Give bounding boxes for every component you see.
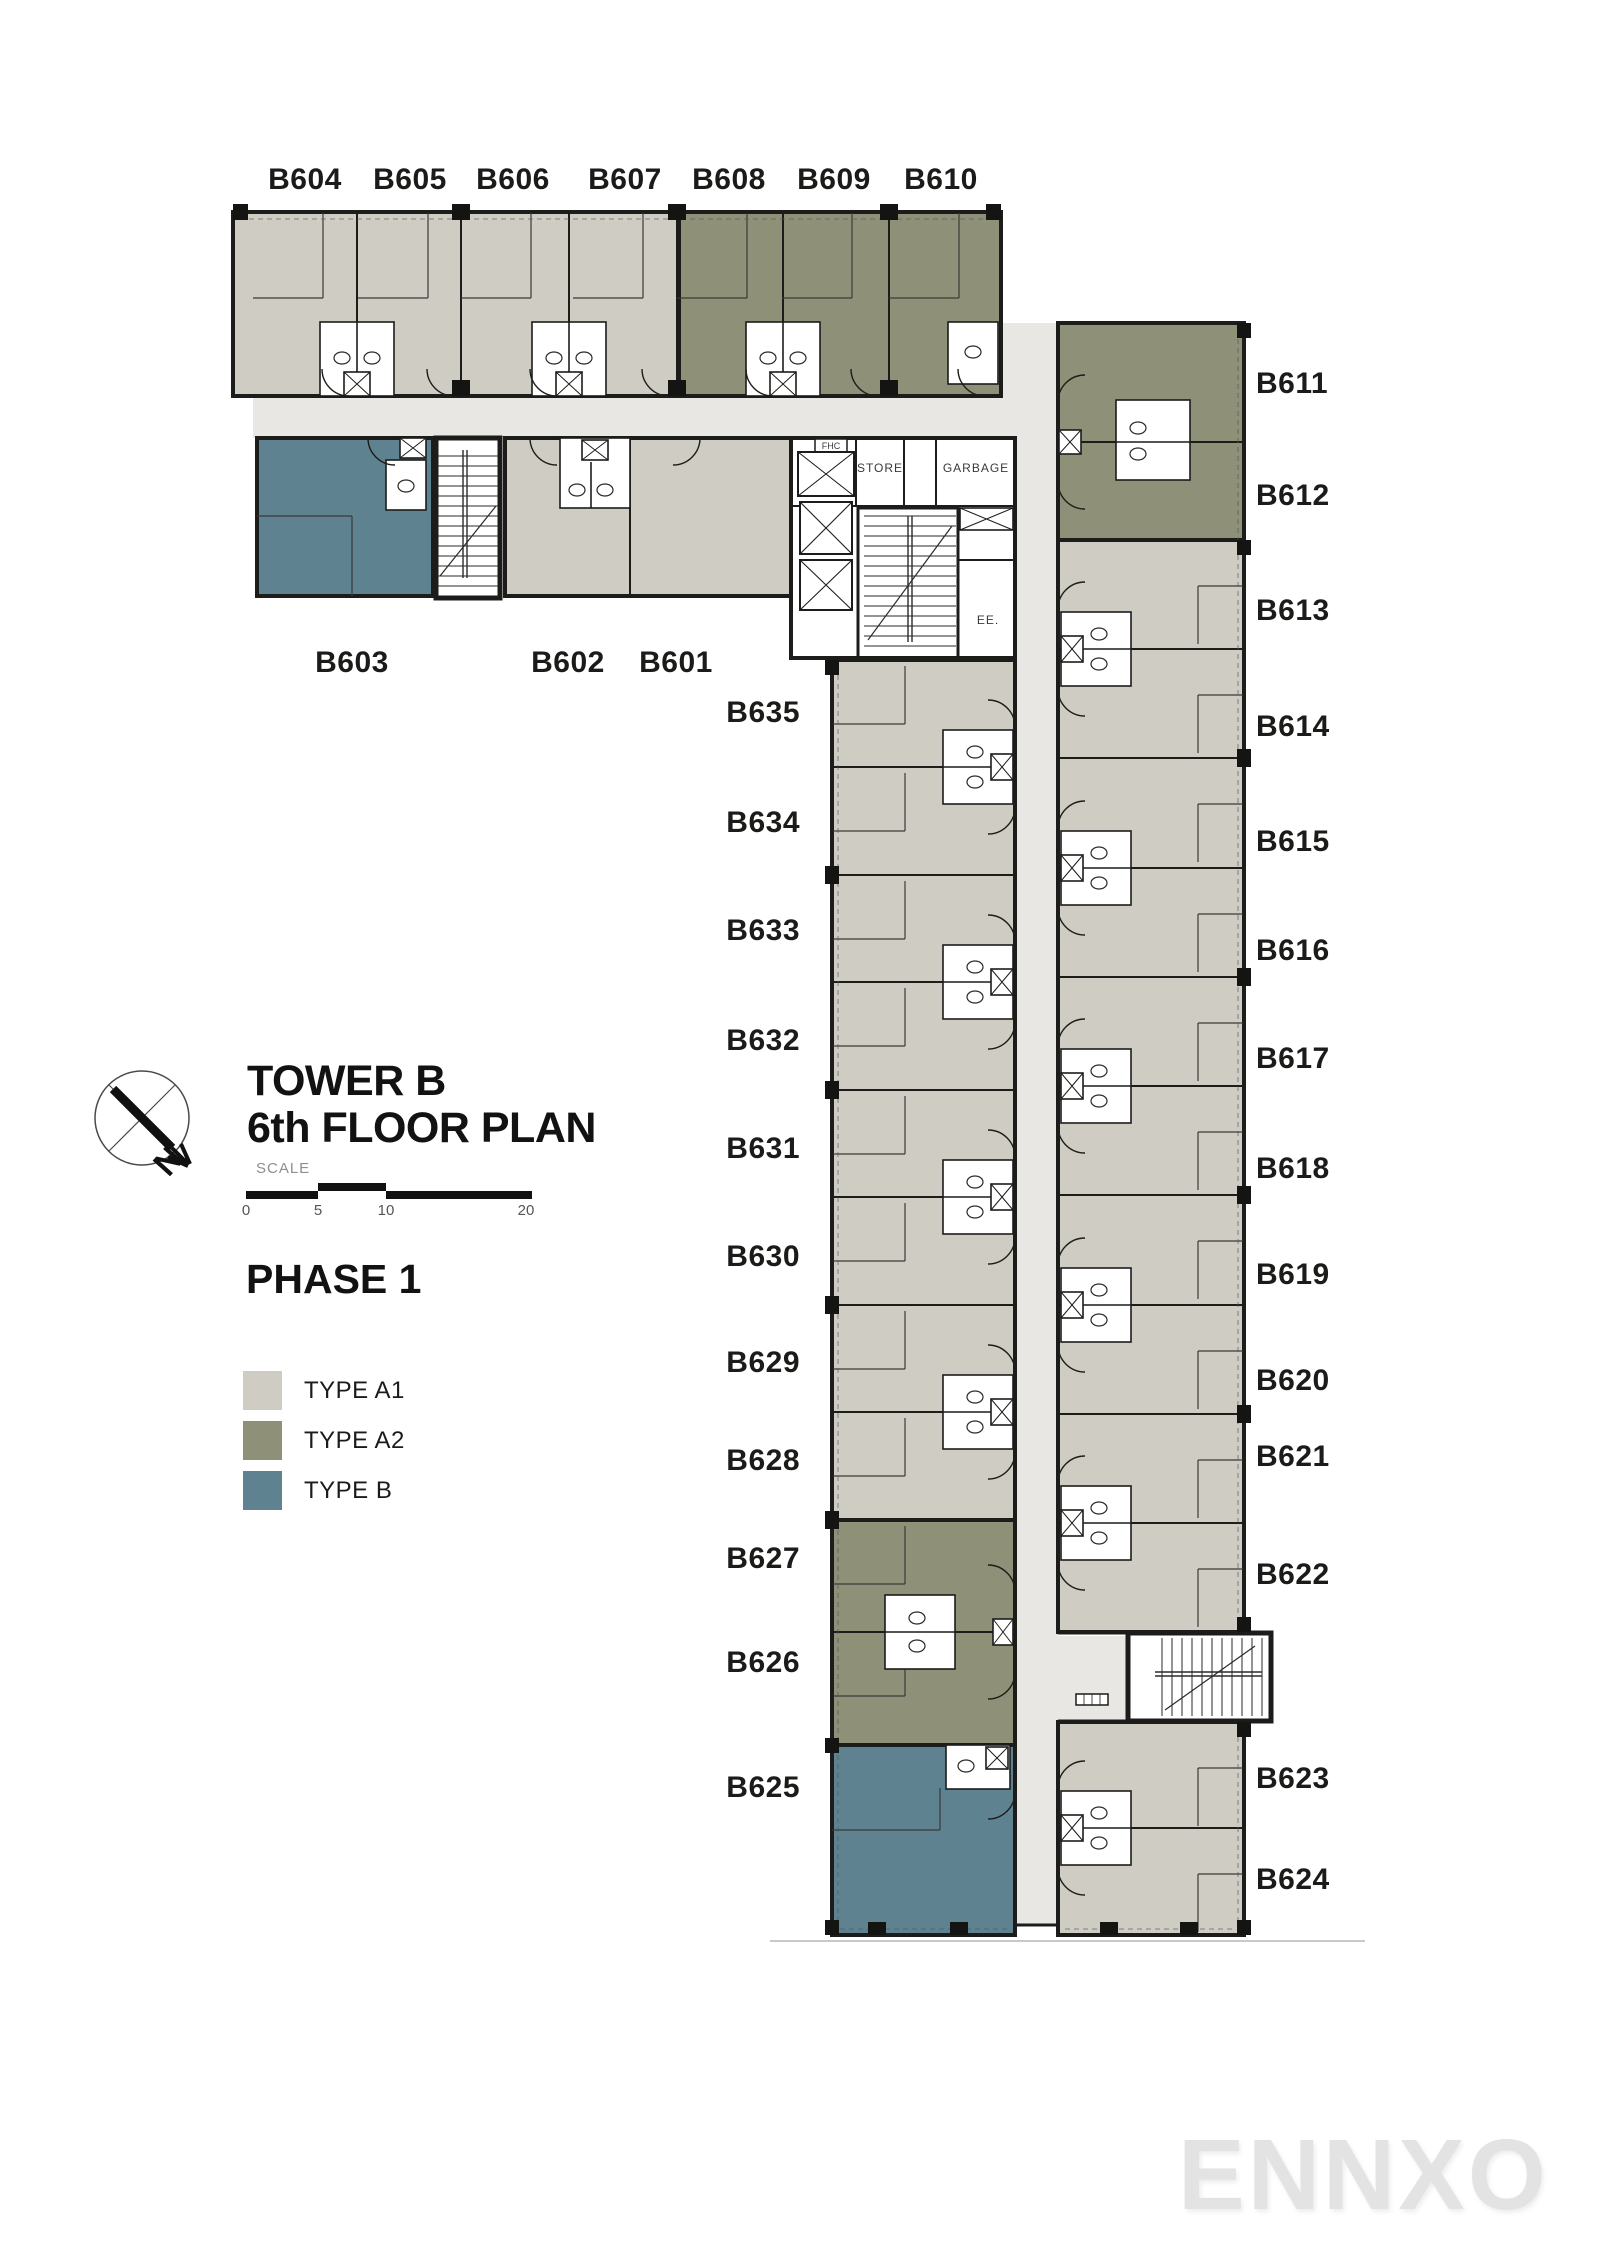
column-mark (825, 1081, 839, 1099)
unit-label-B623: B623 (1256, 1762, 1330, 1795)
unit-label-B601: B601 (639, 646, 713, 679)
type-a2-label: TYPE A2 (304, 1427, 405, 1455)
type-a1-label: TYPE A1 (304, 1377, 405, 1405)
unit-label-B627: B627 (726, 1542, 800, 1575)
unit-label-B628: B628 (726, 1444, 800, 1477)
unit-label-B622: B622 (1256, 1558, 1330, 1591)
block-stair-east (1128, 1633, 1271, 1721)
toilet-fixture (967, 991, 983, 1003)
column-mark (1237, 540, 1251, 555)
north-arrow: N (80, 1056, 230, 1216)
toilet-fixture (967, 961, 983, 973)
unit-label-B632: B632 (726, 1024, 800, 1057)
legend: TYPE A1 TYPE A2 TYPE B (243, 1371, 405, 1521)
column-mark (1180, 1922, 1198, 1935)
unit-label-B617: B617 (1256, 1042, 1330, 1075)
block-top-row-a1 (233, 212, 679, 396)
toilet-fixture (597, 484, 613, 496)
toilet-fixture (965, 346, 981, 358)
floor-plan-page: B604B605B606B607B608B609B610B603B602B601… (0, 0, 1600, 2265)
legend-item-type-a2: TYPE A2 (243, 1421, 405, 1460)
column-mark (1237, 1405, 1251, 1423)
scale-bar-segment (318, 1183, 386, 1191)
column-mark (1237, 1186, 1251, 1204)
unit-label-B607: B607 (588, 163, 662, 196)
unit-label-B608: B608 (692, 163, 766, 196)
toilet-fixture (334, 352, 350, 364)
type-b-label: TYPE B (304, 1477, 392, 1505)
elevator-shafts (798, 452, 854, 610)
column-mark (1237, 1920, 1251, 1935)
toilet-fixture (760, 352, 776, 364)
unit-label-B635: B635 (726, 696, 800, 729)
column-mark (233, 204, 248, 220)
column-mark (1237, 968, 1251, 986)
unit-label-B602: B602 (531, 646, 605, 679)
floor-plan-drawing: B604B605B606B607B608B609B610B603B602B601… (0, 0, 1600, 2265)
toilet-fixture (546, 352, 562, 364)
phase-label: PHASE 1 (246, 1256, 421, 1303)
scale-tick-20: 20 (513, 1202, 539, 1219)
scale-tick-0: 0 (233, 1202, 259, 1219)
legend-item-type-a1: TYPE A1 (243, 1371, 405, 1410)
column-mark (868, 1922, 886, 1935)
scale-bar-segment (386, 1191, 532, 1199)
toilet-fixture (1091, 1314, 1107, 1326)
toilet-fixture (1091, 658, 1107, 670)
column-mark (825, 1920, 839, 1935)
toilet-fixture (909, 1640, 925, 1652)
toilet-fixture (967, 1421, 983, 1433)
column-mark (668, 204, 686, 220)
toilet-fixture (398, 480, 414, 492)
unit-label-B604: B604 (268, 163, 342, 196)
plan-title-line1: TOWER B (247, 1058, 596, 1105)
store-room-label: STORE (857, 461, 903, 475)
toilet-fixture (1091, 1532, 1107, 1544)
column-mark (452, 204, 470, 220)
unit-label-B605: B605 (373, 163, 447, 196)
column-mark (825, 1738, 839, 1753)
column-mark (452, 380, 470, 396)
toilet-fixture (909, 1612, 925, 1624)
unit-label-B629: B629 (726, 1346, 800, 1379)
column-mark (1237, 323, 1251, 338)
toilet-fixture (1091, 1807, 1107, 1819)
column-mark (825, 660, 839, 675)
column-mark (825, 1296, 839, 1314)
toilet-fixture (569, 484, 585, 496)
column-mark (1100, 1922, 1118, 1935)
toilet-fixture (967, 776, 983, 788)
unit-label-B634: B634 (726, 806, 800, 839)
legend-item-type-b: TYPE B (243, 1471, 405, 1510)
column-mark (880, 380, 898, 396)
toilet-fixture (967, 746, 983, 758)
unit-label-B606: B606 (476, 163, 550, 196)
toilet-fixture (1130, 448, 1146, 460)
unit-label-B613: B613 (1256, 594, 1330, 627)
unit-label-B621: B621 (1256, 1440, 1330, 1473)
toilet-fixture (1091, 1837, 1107, 1849)
column-mark (1237, 749, 1251, 767)
unit-label-B619: B619 (1256, 1258, 1330, 1291)
type-a1-swatch (243, 1371, 282, 1410)
column-mark (668, 380, 686, 396)
toilet-fixture (967, 1391, 983, 1403)
toilet-fixture (1091, 1502, 1107, 1514)
column-mark (880, 204, 898, 220)
unit-label-B620: B620 (1256, 1364, 1330, 1397)
electrical-room-label: EE. (977, 613, 999, 627)
unit-label-B630: B630 (726, 1240, 800, 1273)
toilet-fixture (1091, 628, 1107, 640)
toilet-fixture (576, 352, 592, 364)
fhc-label: FHC (822, 441, 841, 451)
toilet-fixture (1091, 1065, 1107, 1077)
unit-label-B624: B624 (1256, 1863, 1330, 1896)
column-mark (825, 1511, 839, 1529)
unit-label-B615: B615 (1256, 825, 1330, 858)
scale-tick-5: 5 (305, 1202, 331, 1219)
toilet-fixture (1091, 1284, 1107, 1296)
type-a2-swatch (243, 1421, 282, 1460)
unit-label-B625: B625 (726, 1771, 800, 1804)
toilet-fixture (967, 1176, 983, 1188)
unit-label-B614: B614 (1256, 710, 1330, 743)
scale-bar: 0 5 10 20 (246, 1183, 536, 1217)
unit-label-B603: B603 (315, 646, 389, 679)
column-mark (825, 866, 839, 884)
column-mark (1237, 1722, 1251, 1737)
column-mark (1237, 1617, 1251, 1632)
toilet-fixture (967, 1206, 983, 1218)
unit-label-B633: B633 (726, 914, 800, 947)
block-stair-west (436, 438, 500, 598)
unit-label-B626: B626 (726, 1646, 800, 1679)
column-mark (986, 204, 1001, 220)
unit-label-B610: B610 (904, 163, 978, 196)
scale-label: SCALE (256, 1160, 310, 1177)
block-b602-b601 (505, 438, 791, 596)
type-b-swatch (243, 1471, 282, 1510)
unit-label-B616: B616 (1256, 934, 1330, 967)
unit-label-B612: B612 (1256, 479, 1330, 512)
toilet-fixture (790, 352, 806, 364)
scale-bar-segment (246, 1191, 318, 1199)
toilet-fixture (1091, 877, 1107, 889)
plan-title-line2: 6th FLOOR PLAN (247, 1105, 596, 1152)
toilet-fixture (958, 1760, 974, 1772)
plan-title: TOWER B 6th FLOOR PLAN (247, 1058, 596, 1153)
toilet-fixture (364, 352, 380, 364)
toilet-fixture (1130, 422, 1146, 434)
toilet-fixture (1091, 1095, 1107, 1107)
watermark: ENNXO (1178, 2118, 1549, 2233)
column-mark (950, 1922, 968, 1935)
garbage-room-label: GARBAGE (943, 461, 1009, 475)
unit-label-B618: B618 (1256, 1152, 1330, 1185)
unit-label-B631: B631 (726, 1132, 800, 1165)
unit-label-B611: B611 (1256, 367, 1328, 400)
bath-core (1116, 400, 1190, 480)
unit-label-B609: B609 (797, 163, 871, 196)
toilet-fixture (1091, 847, 1107, 859)
scale-tick-10: 10 (373, 1202, 399, 1219)
